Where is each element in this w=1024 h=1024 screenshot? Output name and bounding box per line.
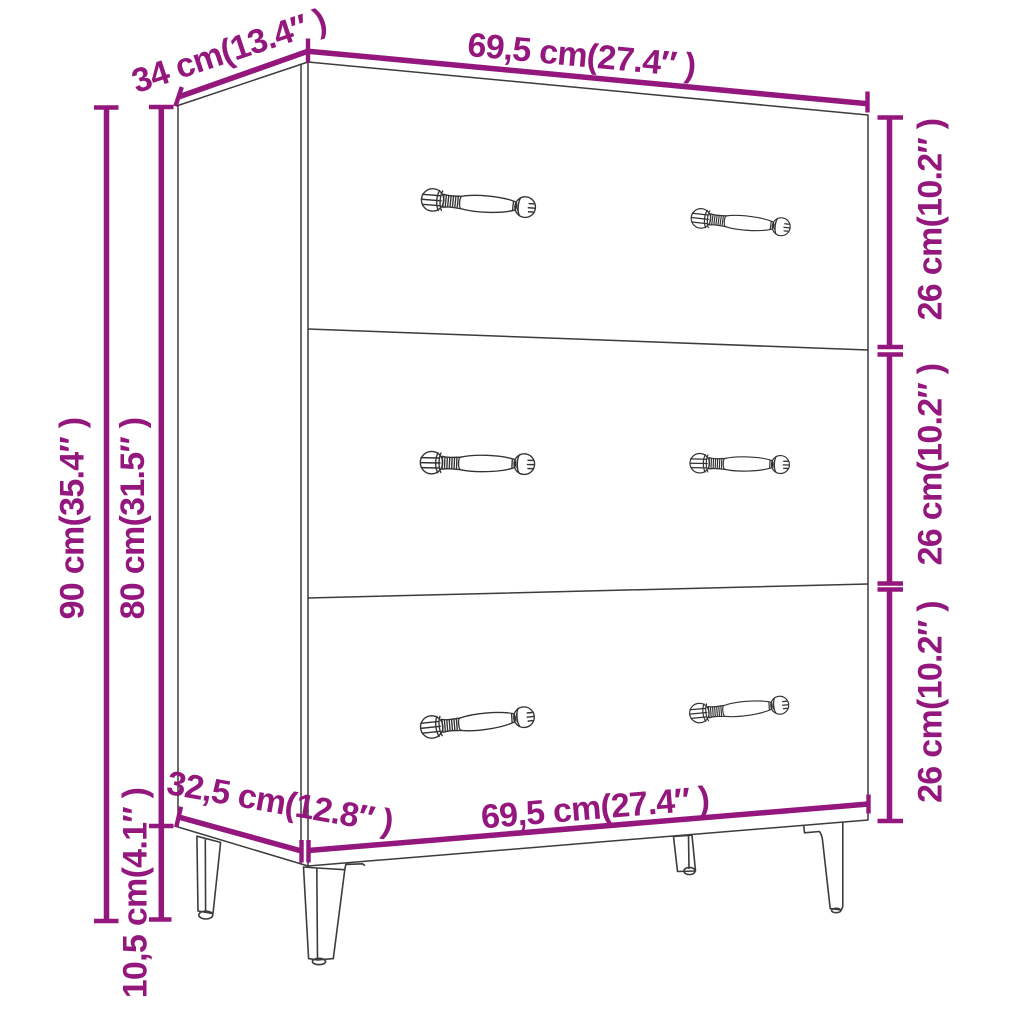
svg-text:26 cm(10.2″ ): 26 cm(10.2″ ) [912, 601, 950, 803]
svg-text:26 cm(10.2″ ): 26 cm(10.2″ ) [912, 119, 950, 321]
svg-text:90 cm(35.4″ ): 90 cm(35.4″ ) [54, 418, 92, 620]
svg-text:26 cm(10.2″ ): 26 cm(10.2″ ) [912, 364, 950, 566]
svg-text:10,5 cm(4.1″ ): 10,5 cm(4.1″ ) [117, 788, 155, 999]
svg-text:80 cm(31.5″ ): 80 cm(31.5″ ) [114, 418, 152, 620]
